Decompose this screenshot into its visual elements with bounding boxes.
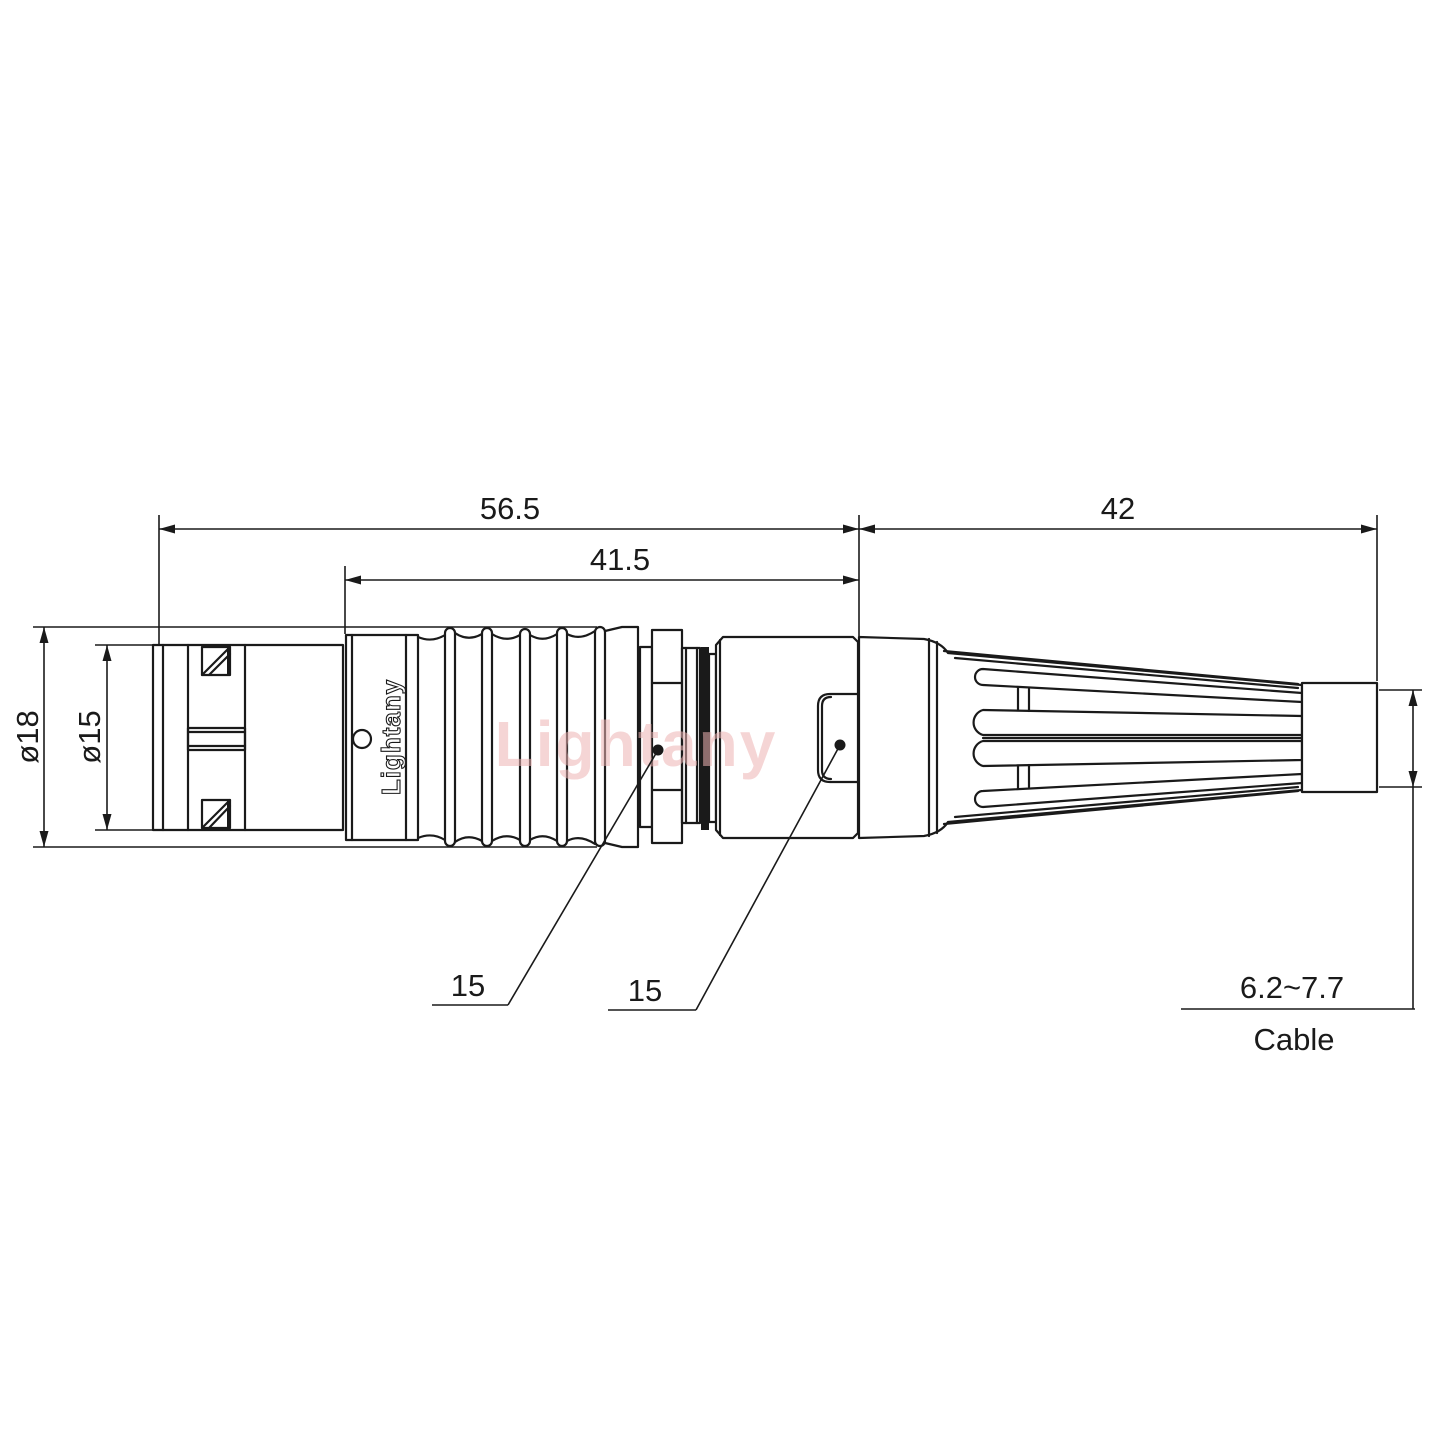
dim-boot-length-label: 42 xyxy=(1101,491,1135,526)
cable-range-label: 6.2~7.7 xyxy=(1240,970,1344,1005)
body-engraving-text: Lightany xyxy=(376,679,406,795)
arrowhead xyxy=(843,576,859,585)
front-nut-flats-label: 15 xyxy=(451,968,485,1003)
arrowhead xyxy=(1409,690,1418,706)
cable-collar xyxy=(1302,683,1377,792)
arrowhead xyxy=(1361,525,1377,534)
arrowhead xyxy=(1409,771,1418,787)
grip-rib xyxy=(482,628,492,846)
key-block-bottom xyxy=(202,800,230,828)
rear-nut-flats-label: 15 xyxy=(628,973,662,1008)
arrowhead xyxy=(843,525,859,534)
arrowhead xyxy=(345,576,361,585)
dim-coupling-diameter: ø15 xyxy=(72,645,160,830)
dim-coupling-diameter-label: ø15 xyxy=(72,710,107,763)
arrowhead xyxy=(40,627,49,643)
strain-relief-boot xyxy=(859,637,1377,838)
arrowhead xyxy=(103,814,112,830)
arrowhead xyxy=(103,645,112,661)
connector-drawing: Lightany xyxy=(0,0,1440,1440)
dim-front-length: 41.5 xyxy=(345,542,859,634)
cable-label: Cable xyxy=(1254,1022,1335,1057)
coupling-nut-section xyxy=(153,645,343,830)
shell-body-section: Lightany xyxy=(346,635,418,840)
dim-total-length-label: 56.5 xyxy=(480,491,540,526)
leader-front-nut-flats: 15 xyxy=(432,745,664,1006)
arrowhead xyxy=(859,525,875,534)
grip-rib xyxy=(445,628,455,846)
dim-front-length-label: 41.5 xyxy=(590,542,650,577)
technical-drawing-page: Lightany xyxy=(0,0,1440,1440)
arrowhead xyxy=(159,525,175,534)
dim-outer-diameter-label: ø18 xyxy=(10,710,45,763)
key-block-top xyxy=(202,647,230,675)
arrowhead xyxy=(40,831,49,847)
coupling-nut-outline xyxy=(153,645,343,830)
nut-groove-band xyxy=(188,728,245,750)
dim-total-length: 56.5 xyxy=(159,491,859,644)
watermark-text: Lightany xyxy=(495,708,778,780)
